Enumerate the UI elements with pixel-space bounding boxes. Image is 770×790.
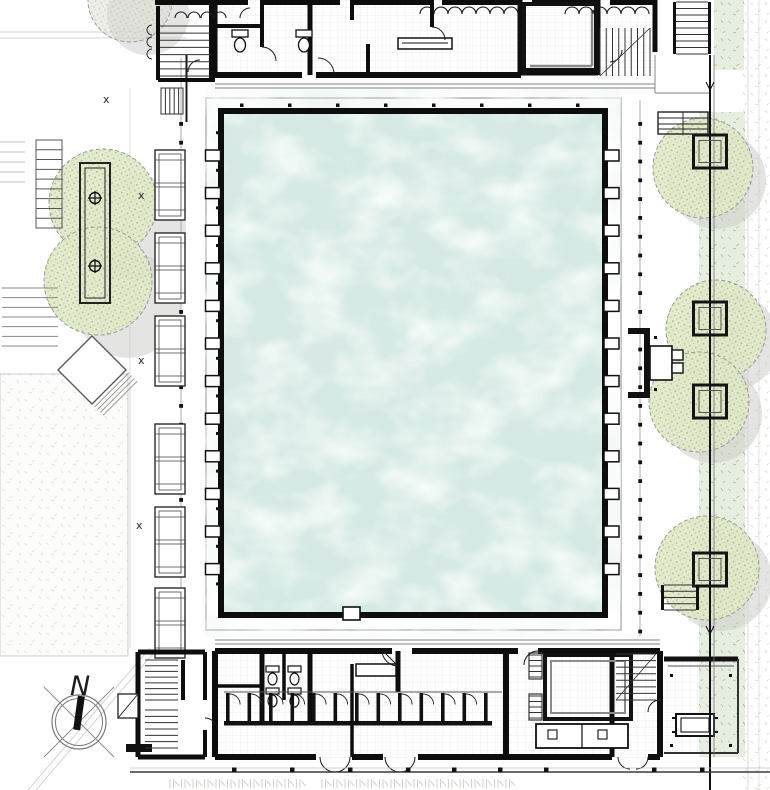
- column-dot: [638, 460, 642, 464]
- pool-ladder: [604, 376, 619, 387]
- bike-rack-icon: [193, 779, 202, 788]
- counter: [356, 664, 396, 676]
- bike-rack-icon: [297, 779, 306, 788]
- stall-partition: [269, 693, 273, 722]
- stall-partition: [484, 693, 488, 722]
- column-dot: [638, 178, 642, 182]
- pool-ladder: [206, 263, 221, 274]
- bench-outline: [155, 316, 185, 386]
- pool-ladder: [206, 526, 221, 537]
- wall-tick: [604, 244, 607, 247]
- column-dot: [638, 216, 642, 220]
- bench-outline: [155, 507, 185, 577]
- pool-ladder: [604, 225, 619, 236]
- column-dot: [638, 536, 642, 540]
- bike-racks: [170, 779, 515, 788]
- wall-tick: [604, 319, 607, 322]
- pool-ladder: [604, 338, 619, 349]
- bike-rack-icon: [403, 779, 412, 788]
- compass: N: [44, 671, 114, 757]
- bike-rack-icon: [334, 779, 343, 788]
- stall-partition: [291, 693, 295, 722]
- wall-tick: [528, 104, 532, 108]
- bike-rack-icon: [205, 779, 214, 788]
- wall-tick: [418, 614, 422, 618]
- wall-tick: [216, 357, 219, 360]
- wall-tick: [216, 169, 219, 172]
- plan-drawing: x x x x: [0, 0, 770, 790]
- wall-tick: [216, 470, 219, 473]
- wall-tick: [216, 545, 219, 548]
- bike-rack-icon: [182, 779, 191, 788]
- wall-tick: [216, 582, 219, 585]
- stall-partition: [334, 693, 338, 722]
- column-dot: [638, 291, 642, 295]
- pool-ladder: [604, 188, 619, 199]
- bike-rack-icon: [426, 779, 435, 788]
- wall-tick: [604, 282, 607, 285]
- stall-partition: [355, 693, 359, 722]
- pool-ladder: [604, 413, 619, 424]
- stall-partition: [463, 693, 467, 722]
- bike-rack-icon: [449, 779, 458, 788]
- bench: [155, 588, 185, 658]
- column-dot: [638, 272, 642, 276]
- wall-tick: [530, 614, 534, 618]
- bench-outline: [155, 588, 185, 658]
- pool-ladder: [206, 451, 221, 462]
- stall-partition: [226, 693, 230, 722]
- column-dot: [179, 141, 183, 145]
- wall-tick: [384, 104, 388, 108]
- wall-tick: [216, 432, 219, 435]
- column-dot: [638, 404, 642, 408]
- stair-flight: [673, 2, 711, 54]
- stall-partition: [377, 693, 381, 722]
- edge-tick: [348, 768, 353, 773]
- wall-tick: [576, 104, 580, 108]
- stair-flight: [0, 142, 25, 182]
- pool-ladder: [604, 564, 619, 575]
- pool-ladder: [206, 225, 221, 236]
- bike-rack-icon: [437, 779, 446, 788]
- bike-rack-icon: [414, 779, 423, 788]
- bench-outline: [155, 424, 185, 494]
- stair-frame: [161, 88, 183, 114]
- south-building: [118, 640, 738, 772]
- pool-ladder: [206, 564, 221, 575]
- green-strip-northeast-texture: [714, 0, 744, 70]
- tree-icon: [88, 0, 189, 55]
- column-dot: [638, 479, 642, 483]
- column-dot: [638, 235, 642, 239]
- edge-tick: [232, 768, 237, 773]
- stall-partition: [312, 693, 316, 722]
- column-dot: [638, 554, 642, 558]
- bike-rack-icon: [239, 779, 248, 788]
- stair-flank: [696, 585, 699, 610]
- pool-water-ripple-light: [224, 114, 602, 612]
- wall-tick: [432, 104, 436, 108]
- wall-tick: [604, 394, 607, 397]
- wall-tick: [604, 470, 607, 473]
- column-dot: [638, 197, 642, 201]
- column-dot: [179, 498, 183, 502]
- stair-flank: [661, 585, 664, 610]
- pool-step-notch: [343, 607, 360, 620]
- bench-outline: [155, 150, 185, 220]
- bike-rack-icon: [483, 779, 492, 788]
- column-dot: [179, 310, 183, 314]
- bike-rack-icon: [380, 779, 389, 788]
- bike-rack-icon: [506, 779, 515, 788]
- cross-marker: x: [136, 519, 143, 532]
- wall-tick: [474, 614, 478, 618]
- column-dot: [638, 366, 642, 370]
- edge-tick: [290, 768, 295, 773]
- wall-tick: [250, 614, 254, 618]
- column-dot: [638, 385, 642, 389]
- bike-rack-icon: [216, 779, 225, 788]
- wall-tick: [362, 614, 366, 618]
- bike-rack-icon: [345, 779, 354, 788]
- column-dot: [638, 498, 642, 502]
- edge-tick: [498, 768, 503, 773]
- pool-ladder: [604, 150, 619, 161]
- column-dot: [179, 404, 183, 408]
- wall-tick: [604, 357, 607, 360]
- column-dot: [638, 160, 642, 164]
- wall-tick: [216, 244, 219, 247]
- bench: [155, 424, 185, 494]
- bench: [155, 150, 185, 220]
- bike-rack-icon: [495, 779, 504, 788]
- wall-tick: [604, 169, 607, 172]
- stair-flight: [145, 710, 178, 748]
- edge-tick: [406, 768, 411, 773]
- cross-marker: x: [138, 189, 145, 202]
- southeast-room: [664, 657, 738, 753]
- wall-tick: [216, 394, 219, 397]
- edge-tick: [544, 768, 549, 773]
- stair-flight: [145, 660, 178, 700]
- bike-rack-icon: [251, 779, 260, 788]
- stair-flank: [708, 2, 711, 54]
- wall-tick: [216, 282, 219, 285]
- cross-marker: x: [103, 93, 110, 106]
- stall-base-wall: [224, 721, 492, 726]
- column-dot: [638, 254, 642, 258]
- wall-tick: [216, 206, 219, 209]
- lawn-texture: [0, 374, 128, 656]
- south-facade-lines: [215, 640, 660, 644]
- north-building: [147, 0, 710, 93]
- site-plan: x x x x: [0, 0, 770, 790]
- stair-flight: [160, 26, 210, 76]
- pool-ladder: [604, 488, 619, 499]
- column-dot: [638, 517, 642, 521]
- bike-rack-icon: [285, 779, 294, 788]
- pool-ladder: [206, 150, 221, 161]
- north-facade-lines: [215, 84, 655, 88]
- wall-tick: [586, 614, 590, 618]
- column-dot: [638, 592, 642, 596]
- column-dot: [638, 442, 642, 446]
- stall-partition: [248, 693, 252, 722]
- pool-ladder: [206, 488, 221, 499]
- wall-tick: [216, 319, 219, 322]
- pool-ladder: [604, 526, 619, 537]
- pool-ladder: [604, 300, 619, 311]
- wall-tick: [604, 206, 607, 209]
- wall-tick: [216, 131, 219, 134]
- column-dot: [638, 348, 642, 352]
- bench-outline: [155, 233, 185, 303]
- wall-tick: [306, 614, 310, 618]
- bench: [155, 233, 185, 303]
- wall-tick: [604, 432, 607, 435]
- column-dot: [638, 630, 642, 634]
- bike-rack-icon: [357, 779, 366, 788]
- wall-tick: [336, 104, 340, 108]
- stall-partition: [441, 693, 445, 722]
- cross-marker: x: [138, 354, 145, 367]
- column-dot: [638, 310, 642, 314]
- pool-ladder: [206, 376, 221, 387]
- wall-tick: [480, 104, 484, 108]
- column-dot: [638, 573, 642, 577]
- stair-flight: [161, 88, 183, 114]
- bike-rack-icon: [460, 779, 469, 788]
- pool-ladder: [206, 188, 221, 199]
- wall-tick: [604, 131, 607, 134]
- bike-rack-icon: [228, 779, 237, 788]
- column-dot: [638, 611, 642, 615]
- bike-rack-icon: [262, 779, 271, 788]
- wall-tick: [604, 507, 607, 510]
- bike-rack-icon: [170, 779, 179, 788]
- pool-ladder: [206, 338, 221, 349]
- wall-tick: [288, 104, 292, 108]
- wall-tick: [604, 582, 607, 585]
- bike-rack-icon: [322, 779, 331, 788]
- edge-tick: [652, 768, 657, 773]
- pool-ladder: [206, 300, 221, 311]
- tree-foliage-texture: [44, 227, 152, 335]
- wall-tick: [216, 507, 219, 510]
- column-dot: [179, 122, 183, 126]
- bike-rack-icon: [472, 779, 481, 788]
- pool-area: [206, 98, 622, 630]
- table: [672, 714, 718, 736]
- cubicle-door-arc: [188, 12, 200, 18]
- stair-flank: [673, 2, 676, 54]
- site-edge-south: [130, 768, 770, 789]
- column-dot: [638, 423, 642, 427]
- tree-foliage-texture: [655, 516, 759, 620]
- pool-ladder: [604, 263, 619, 274]
- edge-tick: [700, 768, 705, 773]
- wall-tick: [604, 545, 607, 548]
- bike-rack-icon: [274, 779, 283, 788]
- column-dot: [638, 141, 642, 145]
- northeast-walkway-lines: [655, 55, 710, 93]
- stall-partition: [420, 693, 424, 722]
- bike-rack-icon: [391, 779, 400, 788]
- edge-tick: [452, 768, 457, 773]
- north-label: N: [70, 671, 90, 702]
- dresser: [536, 724, 628, 748]
- column-dot: [638, 122, 642, 126]
- bench: [155, 316, 185, 386]
- bench: [155, 507, 185, 577]
- wall-tick: [240, 104, 244, 108]
- stall-partition: [398, 693, 402, 722]
- pool-ladder: [206, 413, 221, 424]
- pool-ladder: [604, 451, 619, 462]
- bike-rack-icon: [368, 779, 377, 788]
